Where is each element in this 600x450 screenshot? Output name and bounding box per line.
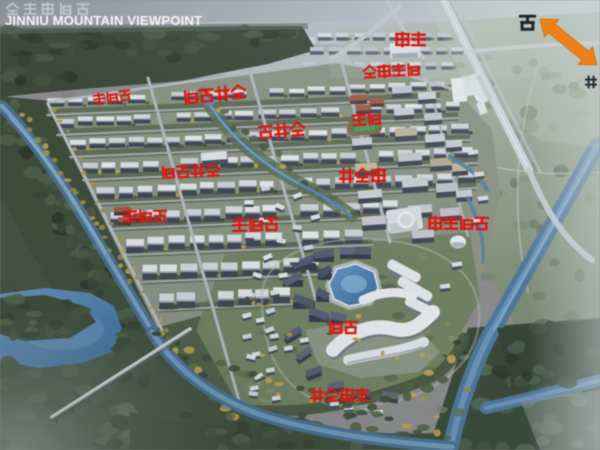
svg-text:JINNIU MOUNTAIN VIEWPOINT: JINNIU MOUNTAIN VIEWPOINT [5, 13, 202, 28]
